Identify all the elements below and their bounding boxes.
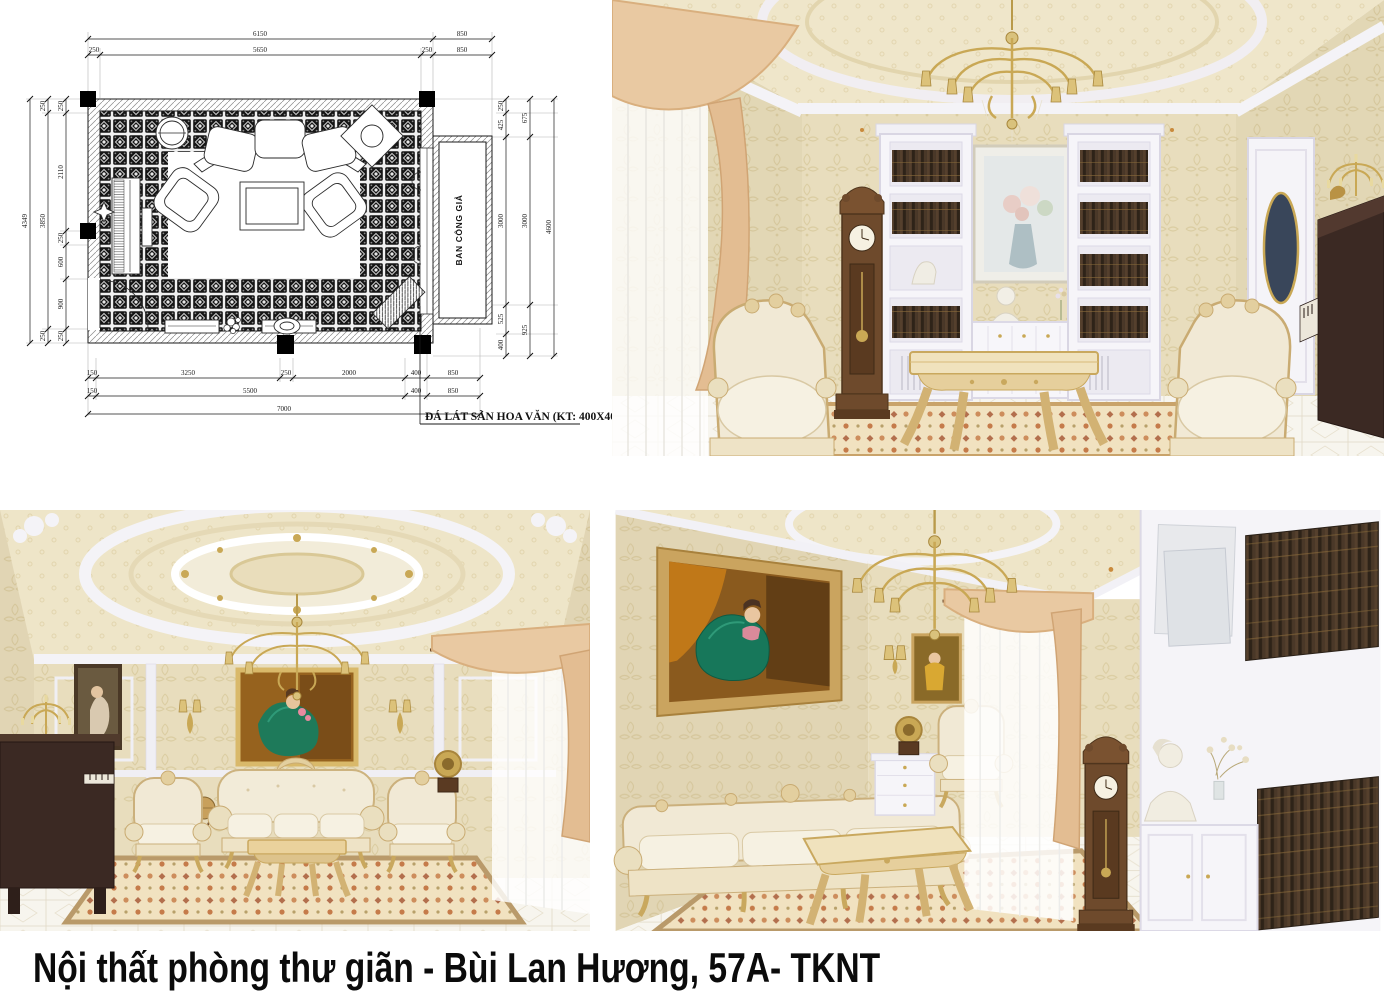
svg-text:6150: 6150 xyxy=(253,30,268,38)
svg-text:250: 250 xyxy=(422,46,433,54)
svg-text:3000: 3000 xyxy=(521,214,529,229)
svg-text:600: 600 xyxy=(57,256,65,267)
piano-bench xyxy=(142,208,152,246)
svg-text:425: 425 xyxy=(497,119,505,130)
console-table xyxy=(165,320,219,333)
svg-text:4600: 4600 xyxy=(545,220,553,235)
piano-keys xyxy=(84,774,114,784)
piano-keys xyxy=(1300,298,1318,342)
books xyxy=(1080,150,1148,182)
render-front-elevation xyxy=(0,510,590,931)
svg-text:400: 400 xyxy=(497,339,505,350)
svg-text:2000: 2000 xyxy=(342,369,357,377)
painting-reader xyxy=(913,635,961,702)
svg-text:250: 250 xyxy=(39,330,47,341)
books xyxy=(892,150,960,182)
books xyxy=(892,202,960,234)
svg-text:3000: 3000 xyxy=(497,214,505,229)
books-bottom xyxy=(1258,777,1379,930)
window-curtains xyxy=(943,589,1094,921)
svg-text:250: 250 xyxy=(57,100,65,111)
floor-plan: BAN CÔNG GIẢ xyxy=(0,6,612,476)
books-top xyxy=(1246,522,1379,661)
grandfather-clock xyxy=(834,187,890,419)
svg-text:250: 250 xyxy=(39,100,47,111)
svg-text:2110: 2110 xyxy=(57,165,65,179)
svg-text:925: 925 xyxy=(521,324,529,335)
svg-text:5500: 5500 xyxy=(243,387,258,395)
svg-text:7000: 7000 xyxy=(277,405,292,413)
grandfather-clock xyxy=(1077,737,1134,931)
svg-text:150: 150 xyxy=(87,369,98,377)
door-opening xyxy=(88,278,100,330)
svg-text:850: 850 xyxy=(457,30,468,38)
books xyxy=(1080,202,1148,234)
svg-text:250: 250 xyxy=(57,330,65,341)
painting-madame-reclining xyxy=(657,548,841,716)
svg-text:3250: 3250 xyxy=(181,369,196,377)
framed-artwork xyxy=(974,146,1074,282)
lower-cabinet xyxy=(1141,825,1258,931)
balcony-label: BAN CÔNG GIẢ xyxy=(453,195,464,266)
svg-text:3850: 3850 xyxy=(39,214,47,229)
render-side-perspective xyxy=(612,510,1384,931)
presentation-sheet: BAN CÔNG GIẢ xyxy=(0,0,1384,1002)
svg-text:850: 850 xyxy=(448,369,459,377)
gramophone xyxy=(896,717,922,755)
books xyxy=(892,306,960,338)
svg-text:900: 900 xyxy=(57,298,65,309)
svg-text:525: 525 xyxy=(497,313,505,324)
svg-text:5650: 5650 xyxy=(253,46,268,54)
side-table xyxy=(871,754,938,815)
books xyxy=(1080,254,1148,286)
gramophone xyxy=(435,751,461,792)
leaning-prints xyxy=(1155,525,1236,647)
svg-text:4349: 4349 xyxy=(21,214,29,229)
render-perspective-front xyxy=(612,0,1384,456)
svg-text:250: 250 xyxy=(89,46,100,54)
svg-text:250: 250 xyxy=(281,369,292,377)
svg-text:150: 150 xyxy=(87,387,98,395)
bookshelf-unit xyxy=(1141,510,1381,931)
svg-text:850: 850 xyxy=(457,46,468,54)
svg-text:850: 850 xyxy=(448,387,459,395)
svg-text:250: 250 xyxy=(57,232,65,243)
svg-text:675: 675 xyxy=(521,112,529,123)
sofa-cushion xyxy=(255,120,305,158)
sheet-caption: Nội thất phòng thư giãn - Bùi Lan Hương,… xyxy=(33,944,880,992)
svg-text:ĐÁ LÁT SÀN HOA VĂN (KT: 400X40: ĐÁ LÁT SÀN HOA VĂN (KT: 400X400) xyxy=(425,409,612,423)
svg-text:250: 250 xyxy=(497,100,505,111)
books xyxy=(1080,306,1148,338)
